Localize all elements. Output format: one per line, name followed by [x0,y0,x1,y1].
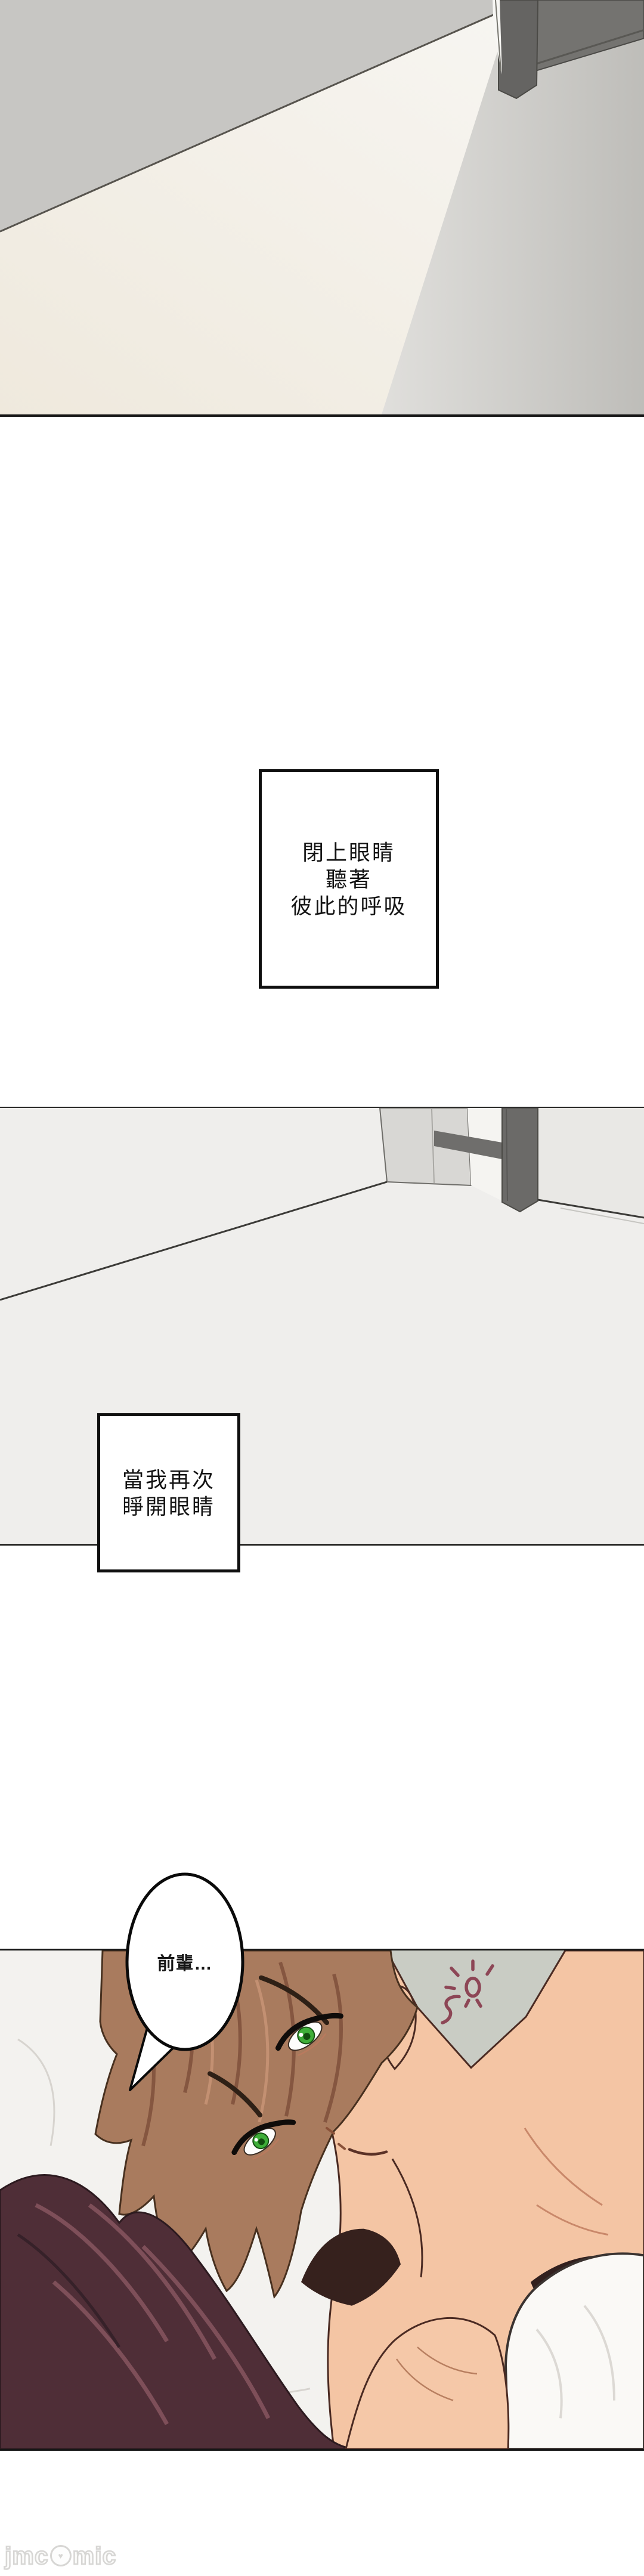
heart-icon: ♥ [58,2552,63,2560]
couple-closeup-art [0,1950,644,2449]
panel-ceiling-scene [0,0,644,417]
narration-line: 睜開眼睛 [122,1493,215,1520]
panel-couple-closeup [0,1949,644,2451]
narration-box-1: 閉上眼睛 聽著 彼此的呼吸 [259,769,439,989]
watermark-text-left: jmc [5,2541,49,2570]
door-scene-art [0,1108,644,1544]
comic-page: 閉上眼睛 聽著 彼此的呼吸 當我再次 睜開眼睛 [0,0,644,2576]
panel-door-scene [0,1107,644,1546]
narration-line: 閉上眼睛 [302,839,395,866]
watermark: jmc ♥ mic [5,2541,116,2570]
narration-line: 聽著 [326,866,372,893]
watermark-text-right: mic [73,2541,117,2570]
narration-box-2: 當我再次 睜開眼睛 [97,1413,240,1572]
ceiling-scene-art [0,0,644,414]
watermark-mascot-icon: ♥ [50,2545,72,2566]
speech-bubble [119,1869,250,2105]
speech-bubble-text: 前輩… [126,1949,243,1975]
narration-line: 當我再次 [122,1466,215,1493]
right-wall-section [538,1108,644,1218]
wardrobe-frame-bar [499,0,538,98]
narration-line: 彼此的呼吸 [290,893,407,919]
